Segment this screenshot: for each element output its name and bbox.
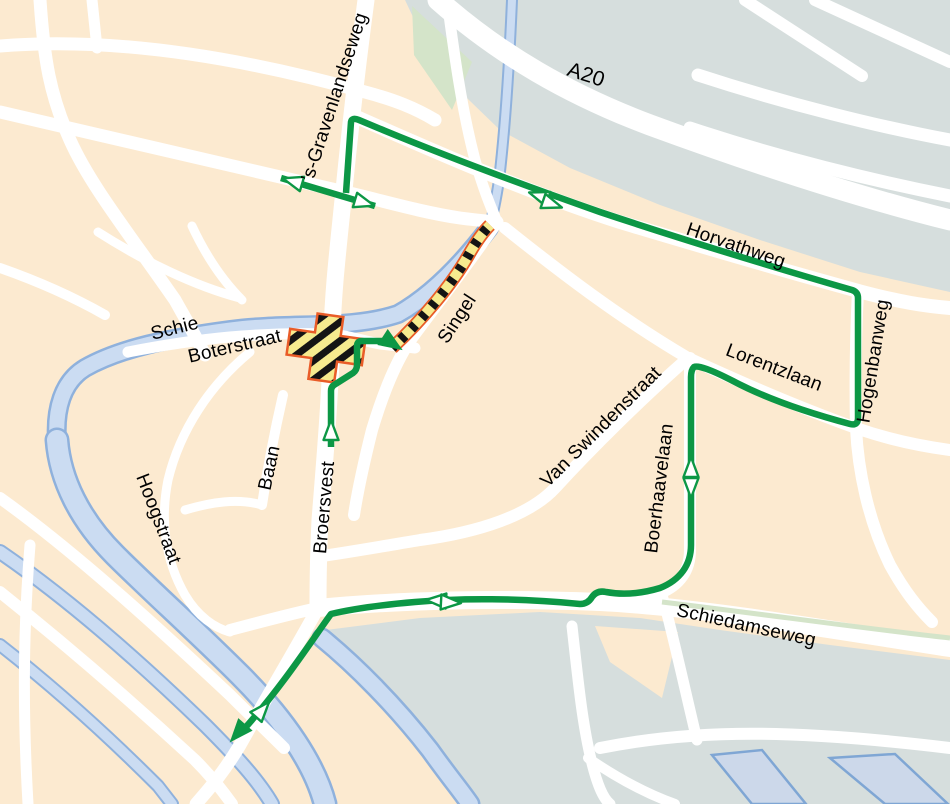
detour-map: Schie Boterstraat ’s-Gravenlandseweg A20…: [0, 0, 950, 804]
map-canvas: Schie Boterstraat ’s-Gravenlandseweg A20…: [0, 0, 950, 804]
road-stub: [92, 0, 97, 48]
road-left-edge: [24, 545, 30, 804]
